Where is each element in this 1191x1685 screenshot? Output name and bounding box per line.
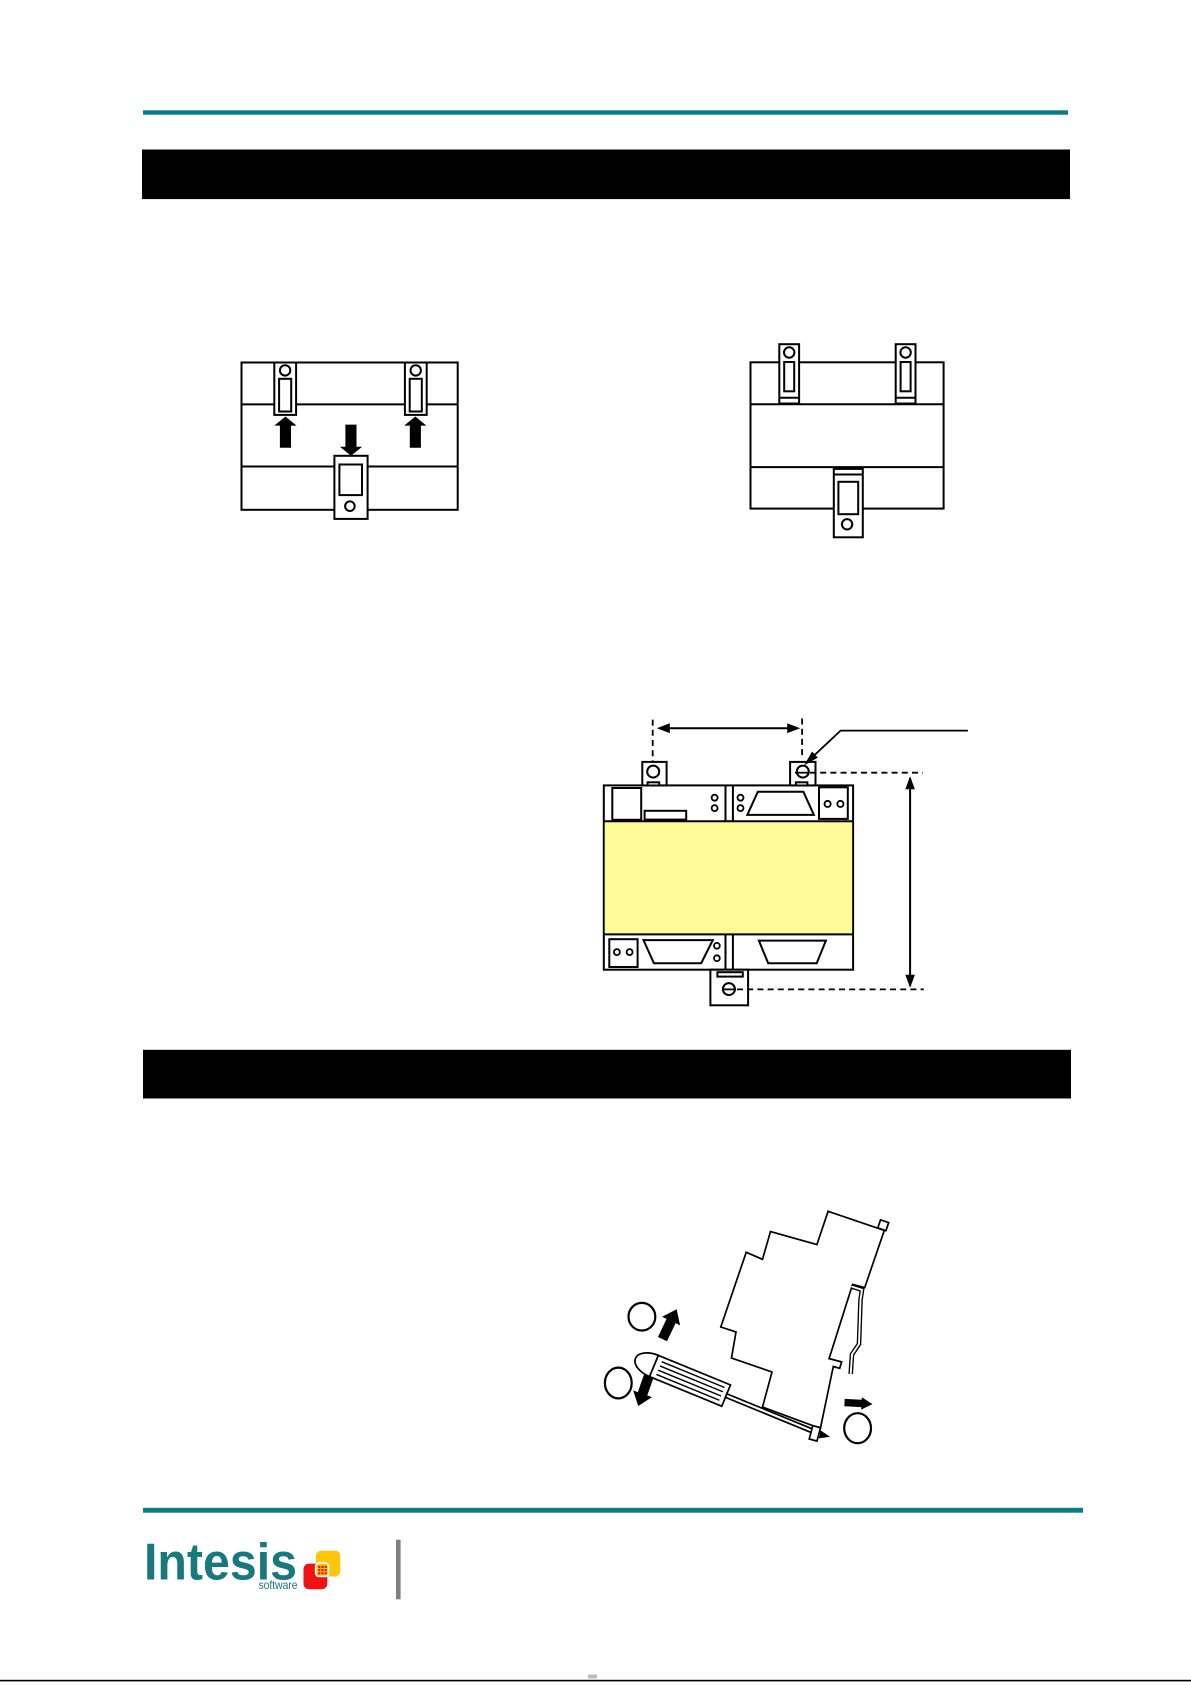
svg-text:software: software <box>259 1578 298 1592</box>
